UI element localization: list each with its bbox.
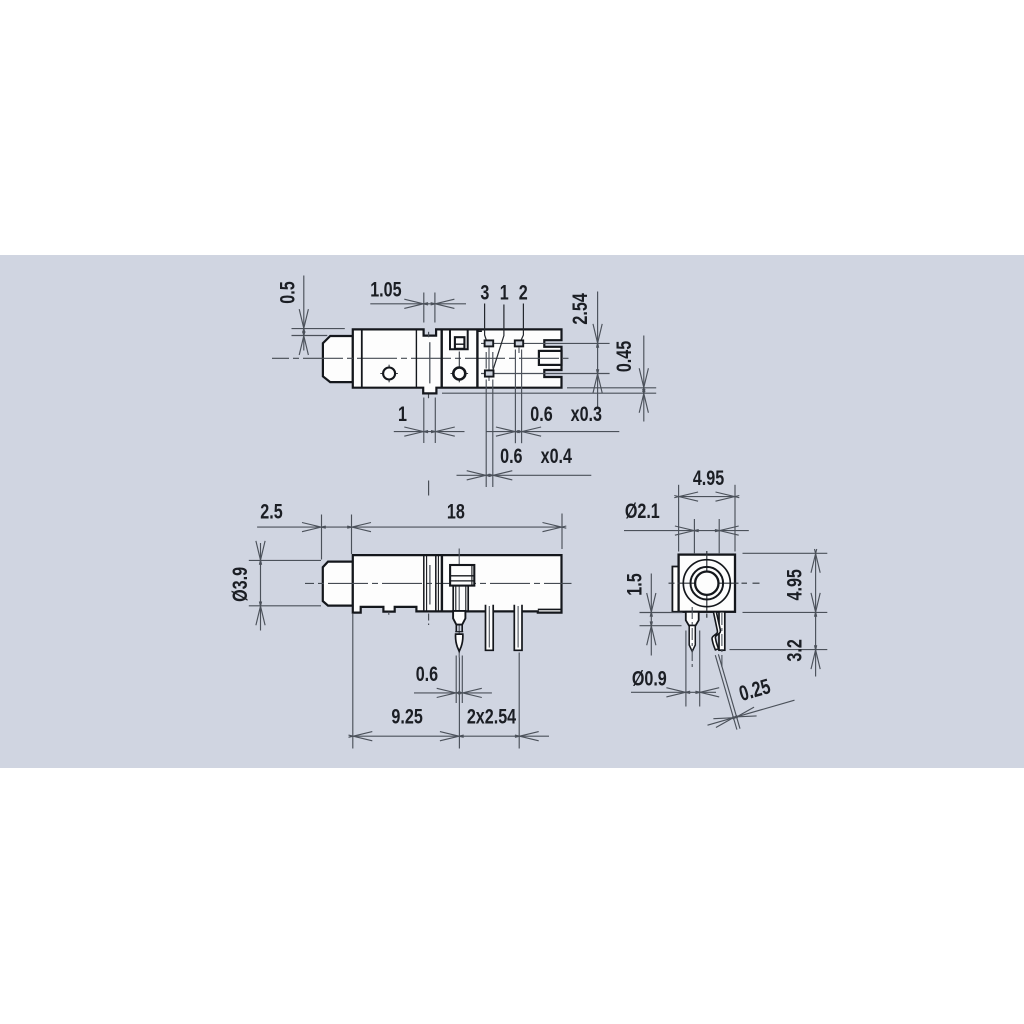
svg-text:3.2: 3.2 [783,639,807,661]
svg-text:Ø2.1: Ø2.1 [625,500,660,524]
svg-text:x0.3: x0.3 [571,403,602,427]
svg-text:2.54: 2.54 [569,293,593,325]
svg-text:0.6: 0.6 [416,663,438,687]
svg-text:0.6: 0.6 [530,403,552,427]
svg-text:x0.4: x0.4 [541,445,573,469]
svg-text:0.45: 0.45 [613,340,637,372]
svg-text:2x2.54: 2x2.54 [467,705,517,729]
svg-text:3: 3 [480,281,489,305]
svg-text:1: 1 [500,281,509,305]
svg-text:2: 2 [519,281,528,305]
svg-text:2.5: 2.5 [260,501,283,525]
svg-text:1: 1 [398,403,407,427]
svg-text:1.05: 1.05 [370,278,402,302]
svg-text:4.95: 4.95 [783,569,807,601]
svg-text:18: 18 [447,501,465,525]
svg-text:Ø3.9: Ø3.9 [229,567,253,602]
svg-text:4.95: 4.95 [693,467,725,491]
svg-text:0.6: 0.6 [500,445,522,469]
svg-text:0.5: 0.5 [276,281,300,304]
svg-text:1.5: 1.5 [623,573,647,596]
svg-text:9.25: 9.25 [391,705,423,729]
svg-text:Ø0.9: Ø0.9 [632,667,667,691]
